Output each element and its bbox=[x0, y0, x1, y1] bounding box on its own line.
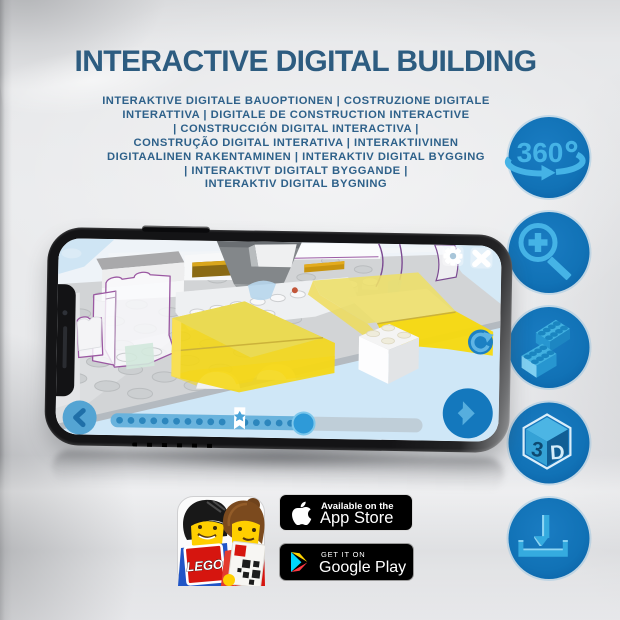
svg-text:D: D bbox=[549, 442, 565, 465]
svg-text:LEGO: LEGO bbox=[186, 556, 224, 574]
svg-text:360: 360 bbox=[517, 137, 564, 168]
